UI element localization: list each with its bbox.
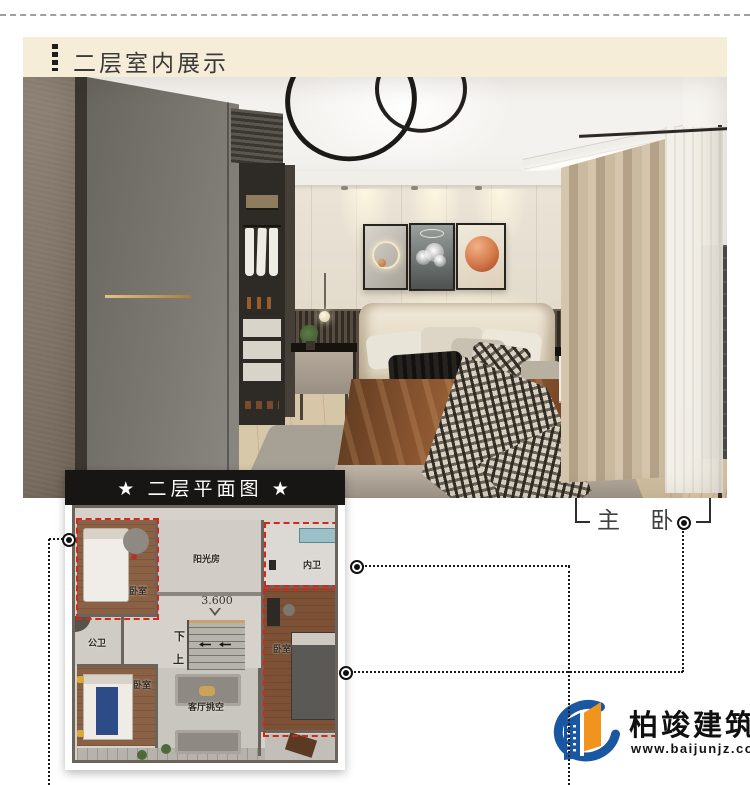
label-stairs-down: 下 xyxy=(174,628,185,644)
plant-pot xyxy=(306,341,315,350)
plan-nightstand xyxy=(77,676,84,683)
nightstand-left xyxy=(295,352,353,394)
shoes xyxy=(245,401,279,409)
artwork-spheres xyxy=(409,223,455,291)
artwork-ring xyxy=(363,224,408,290)
connector-line xyxy=(568,566,570,785)
nightstand-leg xyxy=(300,394,303,420)
top-dashed-divider xyxy=(0,14,750,16)
logo-website-url: www.baijunjz.com xyxy=(631,741,750,756)
section-header: 二层室内展示 xyxy=(23,37,727,77)
plan-sofa xyxy=(175,730,241,754)
nightstand-left-top xyxy=(291,343,357,352)
page: { "header": { "title": "二层室内展示" }, "floo… xyxy=(0,0,750,785)
wardrobe-seam xyxy=(227,102,229,498)
ceiling-spotlight xyxy=(475,186,482,190)
left-wall xyxy=(23,77,75,498)
connector-line xyxy=(682,528,684,672)
plan-stairs xyxy=(187,620,245,670)
shelf-items xyxy=(247,297,277,309)
highlight-box-bedroom-tl xyxy=(76,518,159,620)
label-bath-public: 公卫 xyxy=(88,636,106,649)
storage-box xyxy=(246,195,278,210)
connector-dot xyxy=(62,533,76,547)
plan-plant xyxy=(161,744,171,754)
wardrobe xyxy=(87,77,239,498)
plan-bed-blue xyxy=(83,674,133,740)
ceiling-spotlight xyxy=(411,186,418,190)
highlight-box-bath-inner xyxy=(264,522,338,587)
plan-wall xyxy=(155,664,158,748)
floorplan-image: 3.600 卧室 阳光房 内卫 公卫 卧室 卧室 客厅挑空 下 上 xyxy=(72,505,338,763)
wall-trim xyxy=(75,77,87,498)
sphere-motif xyxy=(434,255,446,267)
plan-coffee-table xyxy=(199,686,215,696)
louver-panel xyxy=(231,108,283,167)
master-bedroom-label: 主 卧 xyxy=(597,501,685,535)
connector-dot xyxy=(339,666,353,680)
bracket-right xyxy=(696,498,711,523)
hanging-shirt xyxy=(245,228,254,276)
logo-company-name: 柏竣建筑 xyxy=(629,702,750,744)
label-bedroom-bl: 卧室 xyxy=(133,678,151,691)
hanging-shirt xyxy=(269,228,278,276)
floorplan-title: ★ 二层平面图 ★ xyxy=(65,470,345,505)
floorplan-card: ★ 二层平面图 ★ 3.600 xyxy=(65,470,345,770)
wardrobe-gold-handle xyxy=(105,295,191,298)
artwork-orange-circle xyxy=(456,223,506,290)
dashed-bar-icon xyxy=(52,44,58,71)
ring-motif xyxy=(372,241,400,269)
label-sunroom: 阳光房 xyxy=(193,552,220,565)
plan-wall xyxy=(121,614,124,666)
label-stairs-up: 上 xyxy=(173,651,184,667)
plan-wall xyxy=(258,668,261,756)
elevation-value: 3.600 xyxy=(187,594,247,607)
pendant-light xyxy=(319,311,330,322)
connector-line xyxy=(48,539,50,785)
hanging-shirt xyxy=(256,228,267,276)
shelf-drawers xyxy=(243,319,281,385)
label-living-void: 客厅挑空 xyxy=(188,700,224,713)
company-logo: 柏竣建筑 www.baijunjz.com xyxy=(543,694,729,776)
plan-plant xyxy=(137,750,147,760)
section-title: 二层室内展示 xyxy=(73,44,229,78)
logo-building-icon xyxy=(543,696,625,772)
copper-orb xyxy=(378,259,386,267)
plan-wall xyxy=(77,664,158,667)
connector-dot xyxy=(677,516,691,530)
plan-nightstand xyxy=(77,730,84,737)
connector-dot xyxy=(350,560,364,574)
shelf-trim xyxy=(285,165,295,417)
bedroom-photo xyxy=(23,77,727,498)
clothes-rod xyxy=(243,225,281,227)
elevation-marker xyxy=(209,608,221,616)
connector-line xyxy=(362,565,570,567)
ceiling-spotlight xyxy=(341,186,348,190)
open-shelving xyxy=(239,163,285,425)
highlight-box-master xyxy=(263,588,338,737)
bracket-left xyxy=(575,498,590,523)
connector-line xyxy=(351,671,683,673)
pendant-cord xyxy=(324,273,326,313)
wall-molding xyxy=(266,171,588,185)
orange-orb xyxy=(465,236,499,272)
sheer-curtain xyxy=(665,127,723,493)
ellipse-motif xyxy=(420,229,444,238)
connector-line xyxy=(49,538,63,540)
